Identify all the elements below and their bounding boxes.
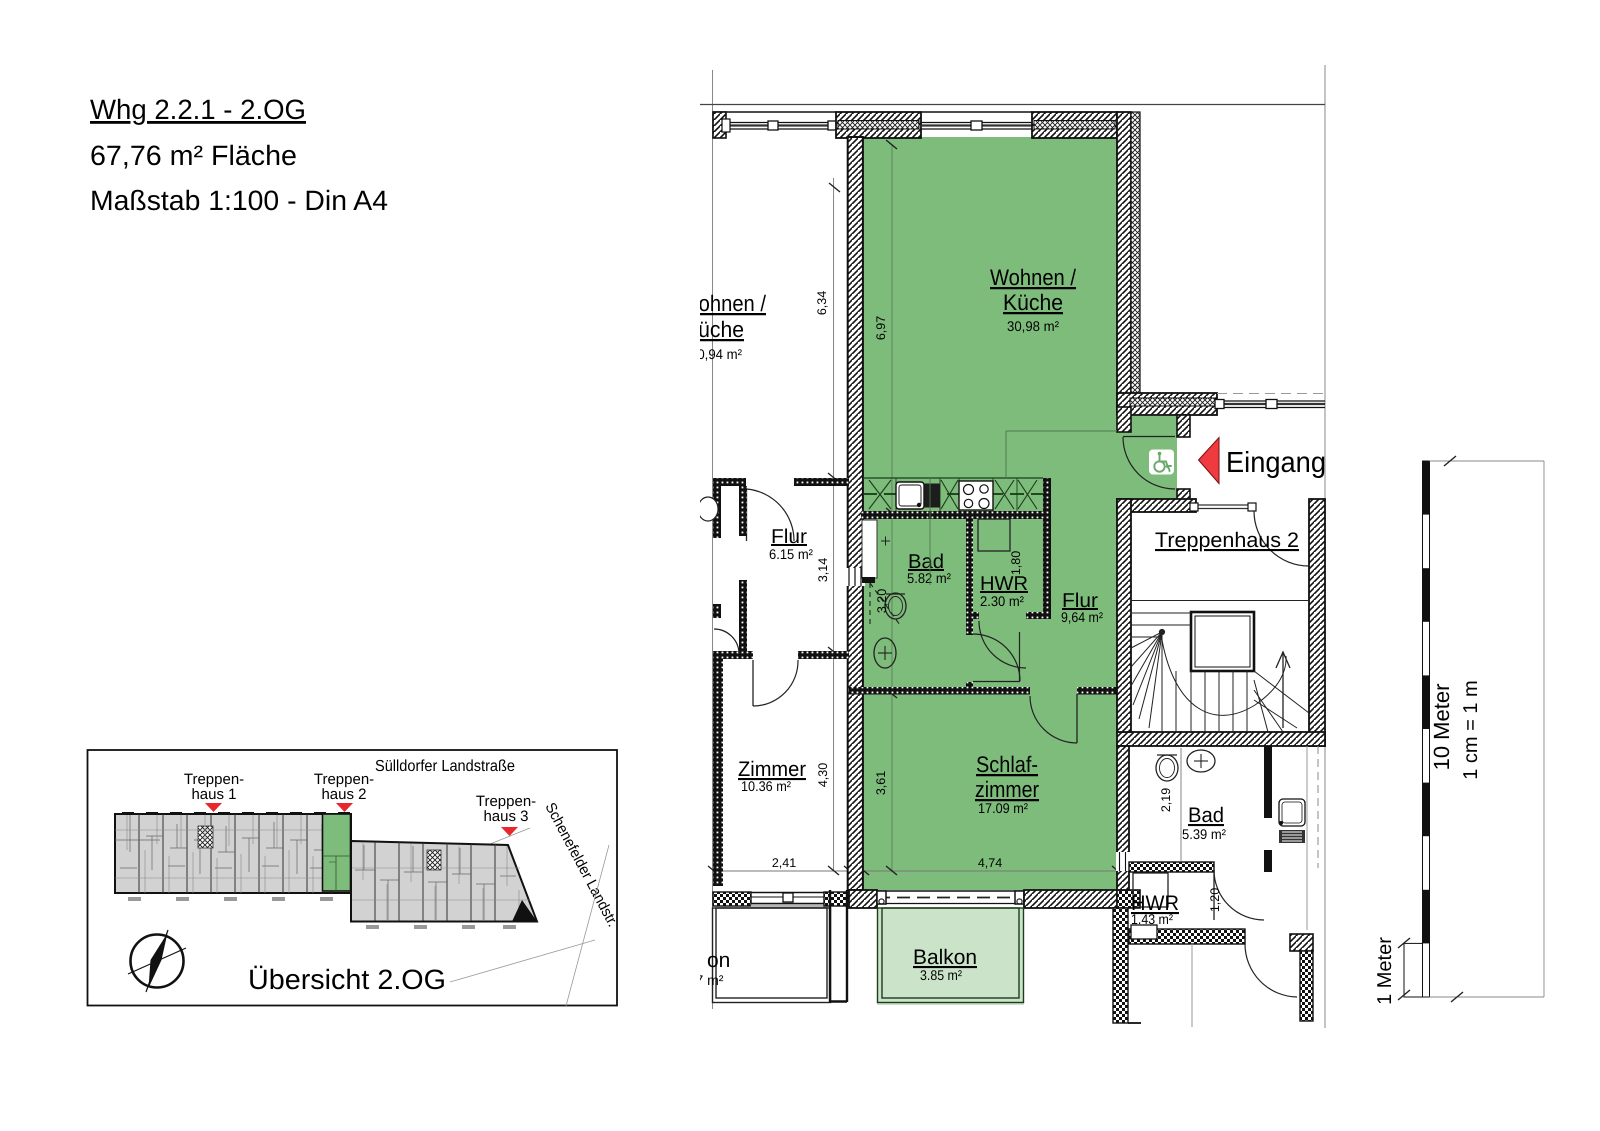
svg-text:30,98 m²: 30,98 m² bbox=[1007, 318, 1059, 334]
svg-text:Whg 2.2.1 - 2.OG: Whg 2.2.1 - 2.OG bbox=[90, 94, 306, 125]
svg-text:4,74: 4,74 bbox=[978, 856, 1002, 870]
svg-text:Bad: Bad bbox=[1188, 804, 1224, 827]
svg-text:17.09 m²: 17.09 m² bbox=[978, 800, 1028, 816]
svg-text:6,97: 6,97 bbox=[874, 316, 888, 340]
svg-text:1.43 m²: 1.43 m² bbox=[1131, 911, 1173, 927]
svg-text:Wohnen /: Wohnen / bbox=[990, 265, 1077, 290]
svg-text:Wohnen /: Wohnen / bbox=[680, 291, 767, 316]
svg-text:10.36 m²: 10.36 m² bbox=[741, 778, 791, 794]
svg-text:on: on bbox=[707, 949, 730, 972]
svg-text:3.85 m²: 3.85 m² bbox=[920, 967, 962, 983]
svg-text:haus 3: haus 3 bbox=[483, 808, 528, 825]
svg-text:67,76 m² Fläche: 67,76 m² Fläche bbox=[90, 140, 297, 171]
svg-text:5.82 m²: 5.82 m² bbox=[907, 570, 951, 586]
svg-text:1 cm = 1 m: 1 cm = 1 m bbox=[1460, 680, 1482, 779]
svg-text:1,80: 1,80 bbox=[1009, 551, 1023, 575]
svg-text:2,19: 2,19 bbox=[1159, 788, 1173, 812]
svg-text:Küche: Küche bbox=[1003, 290, 1063, 315]
svg-text:haus 1: haus 1 bbox=[191, 786, 236, 803]
svg-text:Flur: Flur bbox=[771, 526, 807, 548]
svg-text:2.30 m²: 2.30 m² bbox=[980, 593, 1024, 609]
svg-text:4,30: 4,30 bbox=[816, 763, 830, 787]
svg-text:3,14: 3,14 bbox=[816, 558, 830, 582]
svg-text:6,34: 6,34 bbox=[815, 291, 829, 315]
svg-text:1 Meter: 1 Meter bbox=[1374, 937, 1396, 1005]
svg-text:Sülldorfer Landstraße: Sülldorfer Landstraße bbox=[375, 758, 515, 775]
svg-text:Eingang: Eingang bbox=[1226, 447, 1326, 479]
svg-text:haus 2: haus 2 bbox=[321, 786, 366, 803]
svg-text:Maßstab 1:100 - Din A4: Maßstab 1:100 - Din A4 bbox=[90, 185, 388, 216]
svg-text:zimmer: zimmer bbox=[975, 777, 1039, 802]
svg-text:Schlaf-: Schlaf- bbox=[976, 752, 1038, 777]
svg-text:3,61: 3,61 bbox=[874, 771, 888, 795]
svg-text:Übersicht 2.OG: Übersicht 2.OG bbox=[248, 964, 446, 995]
svg-text:9,64 m²: 9,64 m² bbox=[1061, 609, 1103, 625]
svg-text:Balkon: Balkon bbox=[913, 946, 977, 969]
svg-text:3,20: 3,20 bbox=[875, 589, 889, 613]
svg-text:10 Meter: 10 Meter bbox=[1429, 684, 1454, 771]
svg-text:3.97 m²: 3.97 m² bbox=[676, 972, 724, 988]
svg-text:Treppenhaus 2: Treppenhaus 2 bbox=[1155, 529, 1299, 552]
svg-text:2,41: 2,41 bbox=[772, 856, 796, 870]
svg-text:30,94 m²: 30,94 m² bbox=[690, 346, 742, 362]
svg-text:6.15 m²: 6.15 m² bbox=[769, 546, 813, 562]
svg-text:1,20: 1,20 bbox=[1208, 888, 1222, 912]
svg-text:Küche: Küche bbox=[684, 317, 744, 342]
svg-text:HWR: HWR bbox=[980, 573, 1028, 595]
svg-text:5.39 m²: 5.39 m² bbox=[1182, 826, 1226, 842]
